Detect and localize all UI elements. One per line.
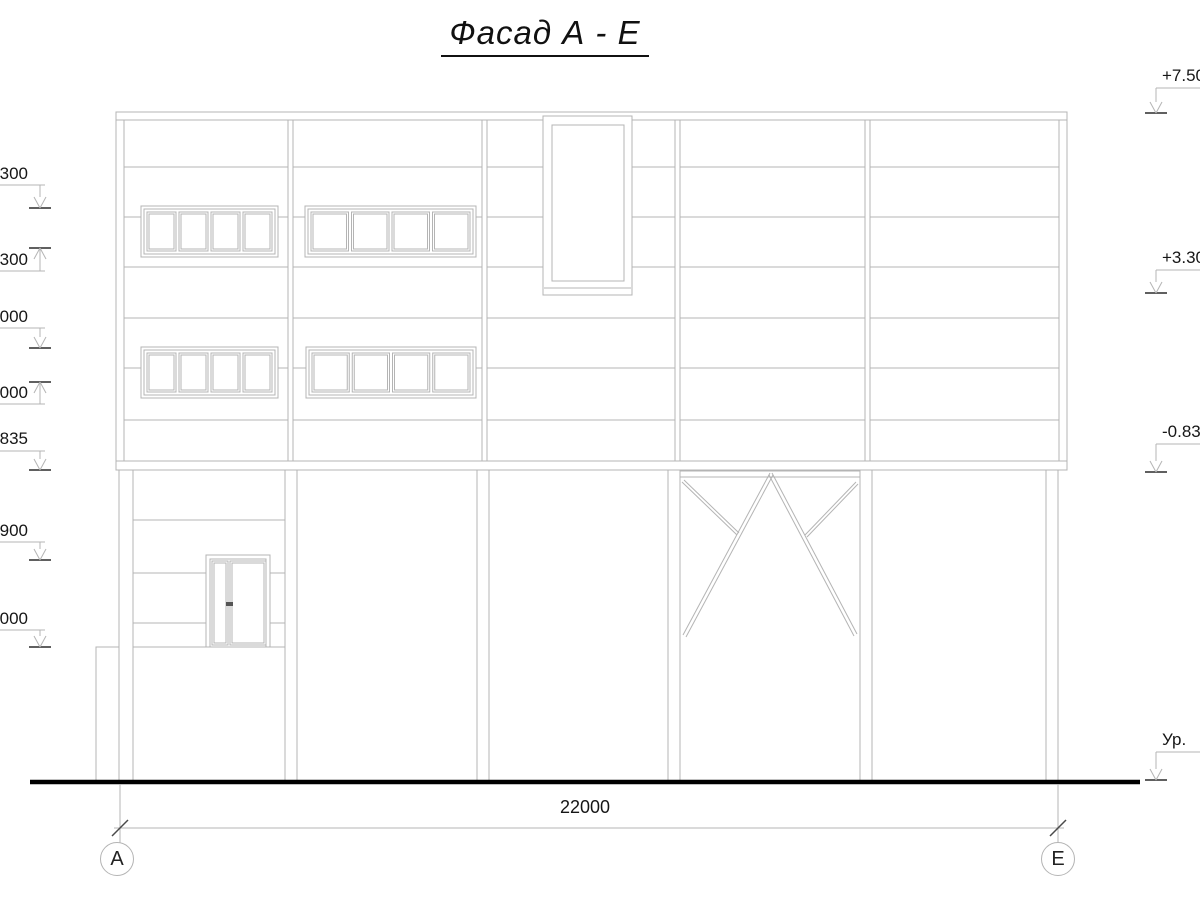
elevation-mark-label: .000 [0, 383, 28, 403]
ribbon-window [305, 206, 476, 257]
roof-shaft [543, 116, 632, 295]
elevation-mark-label: .300 [0, 250, 28, 270]
ribbon-window [141, 206, 278, 257]
elevation-mark-label: +7.50 [1162, 66, 1200, 86]
elevation-mark-label: .900 [0, 521, 28, 541]
elevation-mark-label: 300 [0, 164, 28, 184]
elevation-mark-label: .835 [0, 429, 28, 449]
facade-elevation-svg [0, 0, 1200, 900]
facade-drawing-canvas: Фасад А - Е 22000 А Е 300.300000.000.835… [0, 0, 1200, 900]
elevation-mark-label: -0.83 [1162, 422, 1200, 442]
ribbon-window [306, 347, 476, 398]
axis-bubble-label-e: Е [1041, 842, 1075, 876]
entrance-door [206, 555, 270, 647]
overall-dimension-label: 22000 [525, 797, 645, 818]
ribbon-windows [141, 206, 476, 398]
elevation-mark-label: 000 [0, 307, 28, 327]
elevation-mark-label: .000 [0, 609, 28, 629]
elevation-mark-label: +3.30 [1162, 248, 1200, 268]
axis-bubble-label-a: А [100, 842, 134, 876]
elevation-mark-label: Ур. [1162, 730, 1186, 750]
bracing-bay [680, 471, 860, 637]
ribbon-window [141, 347, 278, 398]
